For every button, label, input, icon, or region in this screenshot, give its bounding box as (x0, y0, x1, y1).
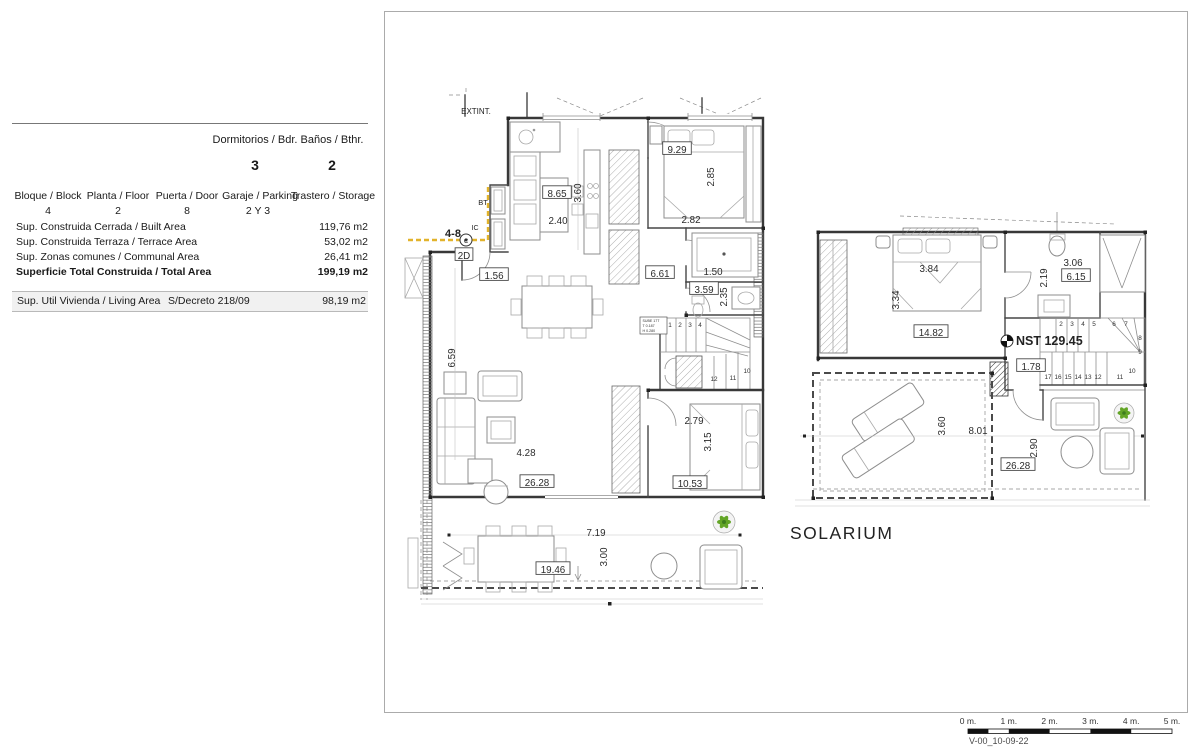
wardrobe (609, 150, 639, 224)
dim-label-box: 1.56 (480, 268, 509, 282)
stair-step-number: 12 (710, 376, 718, 383)
stair-step-number: 4 (698, 322, 702, 329)
stair-step-number: 3 (688, 322, 692, 329)
dim-label: 2.85 (706, 167, 717, 187)
stair-step-number: 12 (1094, 374, 1102, 381)
dim-label: 2.40 (548, 216, 568, 227)
svg-text:26.28: 26.28 (1006, 461, 1031, 472)
stair-step-number: 11 (730, 375, 737, 382)
dim-label: 2.35 (719, 287, 730, 307)
dim-label-box: 1.78 (1017, 359, 1046, 373)
staircase-upper (1001, 318, 1145, 390)
stair-step-number: 14 (1074, 374, 1082, 381)
svg-text:2D: 2D (458, 251, 471, 262)
floor-plan-sheet: Dormitorios / Bdr. Baños / Bthr. 3 2 Blo… (0, 0, 1200, 749)
main-floor-plan (405, 88, 765, 606)
plant-icon (713, 511, 735, 533)
floor-plan-drawing: 9.298.651.562D6.613.5926.2810.5319.4614.… (0, 0, 1200, 749)
dim-label: 8.01 (968, 426, 987, 437)
stair-step-number: 8 (1138, 335, 1142, 342)
stair-step-number: 10 (743, 368, 751, 375)
communal-wall-hatch (423, 256, 432, 594)
dim-label-box: 6.15 (1062, 269, 1091, 283)
stair-step-number: 11 (1117, 374, 1124, 381)
dim-label: 1.50 (703, 267, 723, 278)
terrace (408, 500, 763, 606)
dim-label-box: 14.82 (914, 325, 948, 339)
dim-label-box: 3.59 (690, 282, 719, 296)
dim-label: 2.90 (1029, 438, 1040, 458)
scale-tick-label: 5 m. (1164, 716, 1181, 726)
stair-step-number: 13 (1084, 374, 1092, 381)
upper-bedroom (820, 235, 997, 353)
scale-tick-label: 3 m. (1082, 716, 1099, 726)
dim-label: 4.28 (516, 448, 536, 459)
plant-icon (1114, 403, 1134, 423)
svg-text:1.78: 1.78 (1021, 362, 1041, 373)
stair-step-number: 5 (1092, 321, 1096, 328)
stair-step-number: 2 (678, 322, 682, 329)
dim-label-box: 6.61 (646, 266, 675, 280)
plan-version: V-00_10-09-22 (969, 736, 1029, 746)
scale-bar: 0 m.1 m.2 m.3 m.4 m.5 m. V-00_10-09-22 (960, 716, 1181, 746)
sheet-frame (385, 12, 1188, 713)
dim-label-box: 8.65 (543, 186, 572, 200)
dim-label: 3.15 (703, 432, 714, 452)
svg-text:9.29: 9.29 (667, 145, 686, 156)
plan-annotation: BT (478, 198, 488, 207)
dim-label: 3.34 (891, 290, 902, 310)
communal-stair (405, 258, 423, 298)
stair-note-line: H 0.280 (643, 329, 656, 333)
stair-step-number: 10 (1128, 368, 1136, 375)
stair-step-number: 7 (1124, 321, 1128, 328)
dim-label-box: 26.28 (1001, 458, 1035, 472)
tv-unit (612, 386, 640, 493)
plan-annotation: EXTINT. (461, 107, 491, 116)
plan-annotation: IC (472, 225, 479, 232)
plan-annotation: SOLARIUM (790, 523, 893, 543)
svg-text:14.82: 14.82 (919, 328, 944, 339)
stair-note-line: T 0.187 (643, 324, 655, 328)
stair-note-line: SUBE 17T (643, 319, 661, 323)
dim-label: 3.60 (573, 183, 584, 203)
stair-step-number: 3 (1070, 321, 1074, 328)
stair-step-number: 4 (1081, 321, 1085, 328)
plan-annotation: 4-8 (445, 228, 461, 240)
scale-tick-label: 4 m. (1123, 716, 1140, 726)
stair-step-number: 17 (1044, 374, 1052, 381)
dim-label: 2.19 (1039, 268, 1050, 287)
svg-text:1.56: 1.56 (484, 271, 504, 282)
stair-step-number: 6 (1112, 321, 1116, 328)
upper-terrace (795, 385, 1150, 506)
plan-annotation: NST 129.45 (1016, 334, 1083, 348)
stair-step-number: 15 (1064, 374, 1072, 381)
dim-label: 7.19 (586, 528, 605, 539)
wardrobe (609, 230, 639, 284)
stair-step-number: 9 (1138, 349, 1142, 356)
plan-annotation: C (464, 239, 469, 245)
upper-floor-plan (795, 212, 1150, 506)
dim-label-box: 2D (455, 248, 473, 262)
dim-label: 2.79 (684, 416, 703, 427)
svg-text:19.46: 19.46 (541, 565, 566, 576)
scale-tick-label: 0 m. (960, 716, 977, 726)
dim-label: 3.00 (599, 547, 610, 567)
wardrobe (820, 240, 847, 353)
bedroom-1 (648, 118, 761, 228)
dim-label: 3.06 (1063, 258, 1083, 269)
scale-tick-label: 1 m. (1001, 716, 1018, 726)
svg-text:8.65: 8.65 (547, 189, 567, 200)
dim-label: 6.59 (447, 348, 458, 367)
svg-text:26.28: 26.28 (525, 478, 550, 489)
svg-text:3.59: 3.59 (694, 285, 713, 296)
stair-step-number: 16 (1054, 374, 1062, 381)
dim-label: 2.82 (681, 215, 700, 226)
dim-label-box: 26.28 (520, 475, 554, 489)
stair-step-number: 1 (668, 322, 672, 329)
svg-text:6.61: 6.61 (650, 269, 669, 280)
scale-tick-label: 2 m. (1041, 716, 1058, 726)
svg-text:6.15: 6.15 (1066, 272, 1086, 283)
stair-step-number: 2 (1059, 321, 1063, 328)
dim-label: 3.84 (919, 264, 939, 275)
dim-label-box: 10.53 (673, 476, 707, 490)
dim-label-box: 9.29 (663, 142, 692, 156)
dim-label: 3.60 (937, 416, 948, 436)
svg-text:10.53: 10.53 (678, 479, 703, 490)
dim-label-box: 19.46 (536, 562, 570, 576)
